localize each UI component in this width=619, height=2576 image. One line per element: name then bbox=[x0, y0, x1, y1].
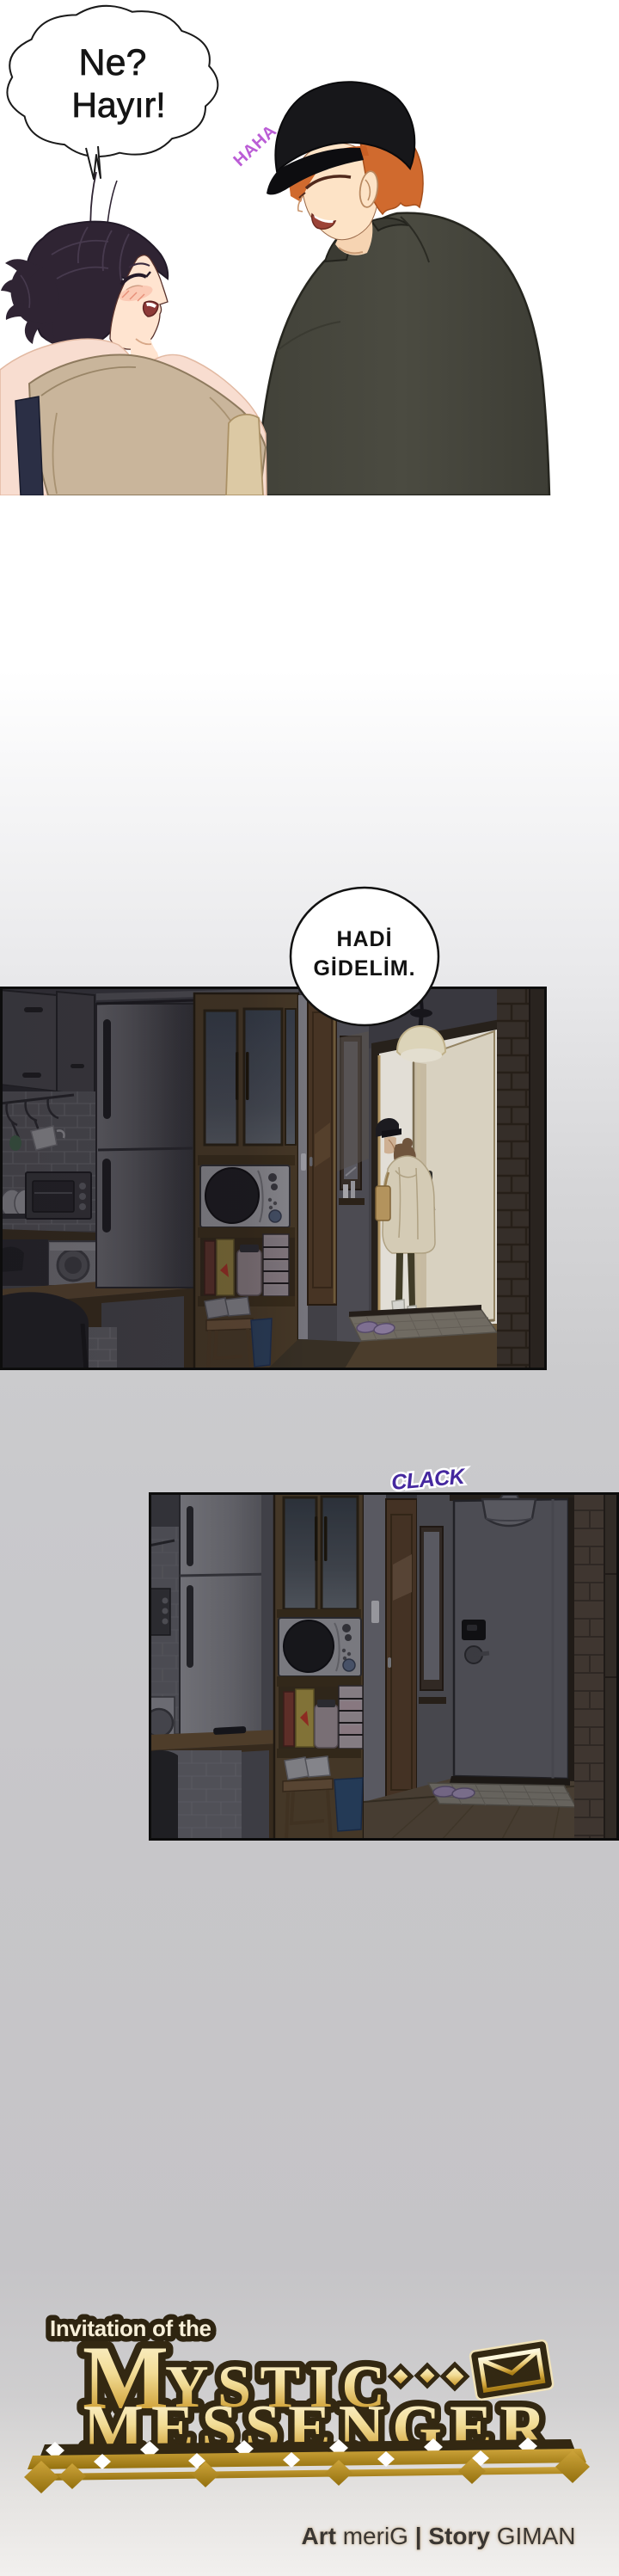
svg-text:Hayır!: Hayır! bbox=[71, 85, 165, 125]
svg-text:Ne?: Ne? bbox=[79, 42, 147, 83]
svg-text:HADİ: HADİ bbox=[336, 927, 392, 951]
svg-text:CLACK: CLACK bbox=[390, 1464, 468, 1495]
svg-text:GİDELİM.: GİDELİM. bbox=[313, 956, 415, 981]
